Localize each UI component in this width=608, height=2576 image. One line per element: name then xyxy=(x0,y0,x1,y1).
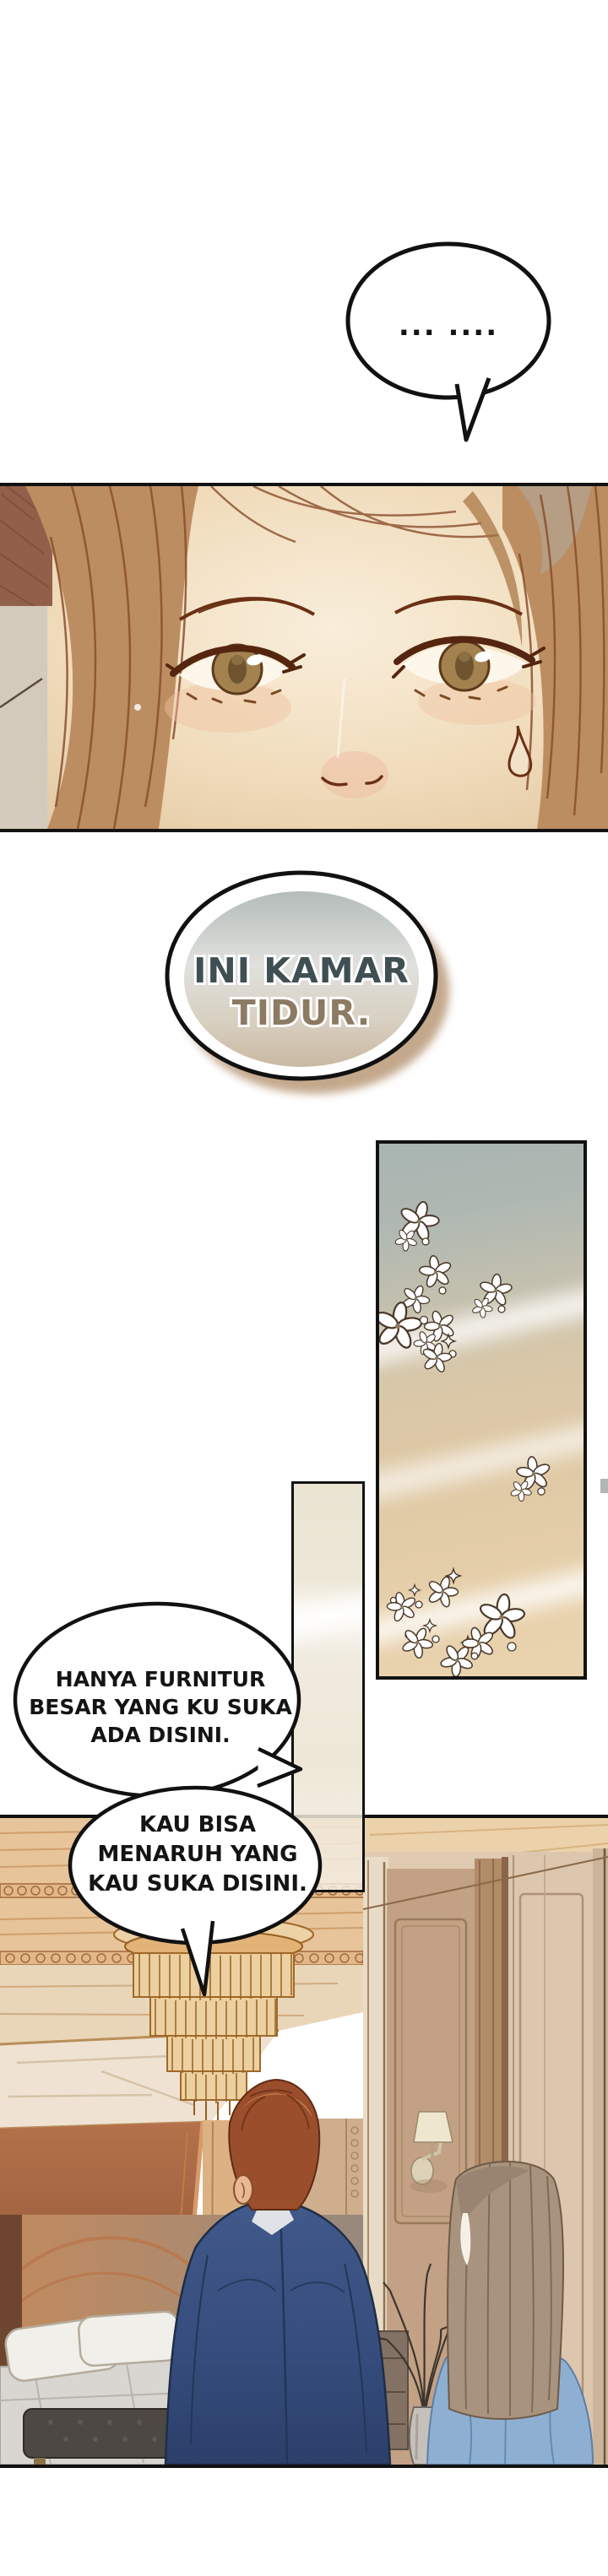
room-label-line1: INI KAMAR xyxy=(193,950,410,991)
cheek-sparkle xyxy=(134,704,141,711)
dialogue-bubbles: HANYA FURNITUR BESAR YANG KU SUKA ADA DI… xyxy=(0,1587,355,2026)
speech-bubble-furniture: HANYA FURNITUR BESAR YANG KU SUKA ADA DI… xyxy=(15,1604,301,1796)
speech-bubble-silence: ... .... xyxy=(334,232,562,452)
offer-line3: KAU SUKA DISINI. xyxy=(88,1871,307,1897)
panel-face-closeup xyxy=(0,483,608,832)
nose xyxy=(321,751,388,798)
panel-flower-curtain xyxy=(376,1140,587,1680)
offer-line1: KAU BISA xyxy=(139,1812,256,1837)
flowers xyxy=(379,1144,584,1676)
webtoon-page: ... .... xyxy=(0,0,608,2576)
face-art xyxy=(0,486,608,829)
speech-bubble-room-label: INI KAMAR TIDUR. xyxy=(148,854,469,1116)
flower-pair-middle xyxy=(506,1454,553,1505)
furniture-line3: ADA DISINI. xyxy=(90,1723,230,1747)
background-wall xyxy=(0,486,52,829)
speech-bubble-offer: KAU BISA MENARUH YANG KAU SUKA DISINI. xyxy=(70,1788,320,1994)
furniture-line1: HANYA FURNITUR xyxy=(56,1667,265,1691)
offer-line2: MENARUH YANG xyxy=(97,1842,297,1867)
furniture-line2: BESAR YANG KU SUKA xyxy=(29,1695,292,1719)
room-label-line2: TIDUR. xyxy=(232,993,371,1033)
silence-text: ... .... xyxy=(399,309,498,343)
flower-cluster-top xyxy=(379,1197,514,1376)
edge-fragment xyxy=(600,1479,608,1493)
flower-cluster-bottom xyxy=(383,1569,529,1676)
